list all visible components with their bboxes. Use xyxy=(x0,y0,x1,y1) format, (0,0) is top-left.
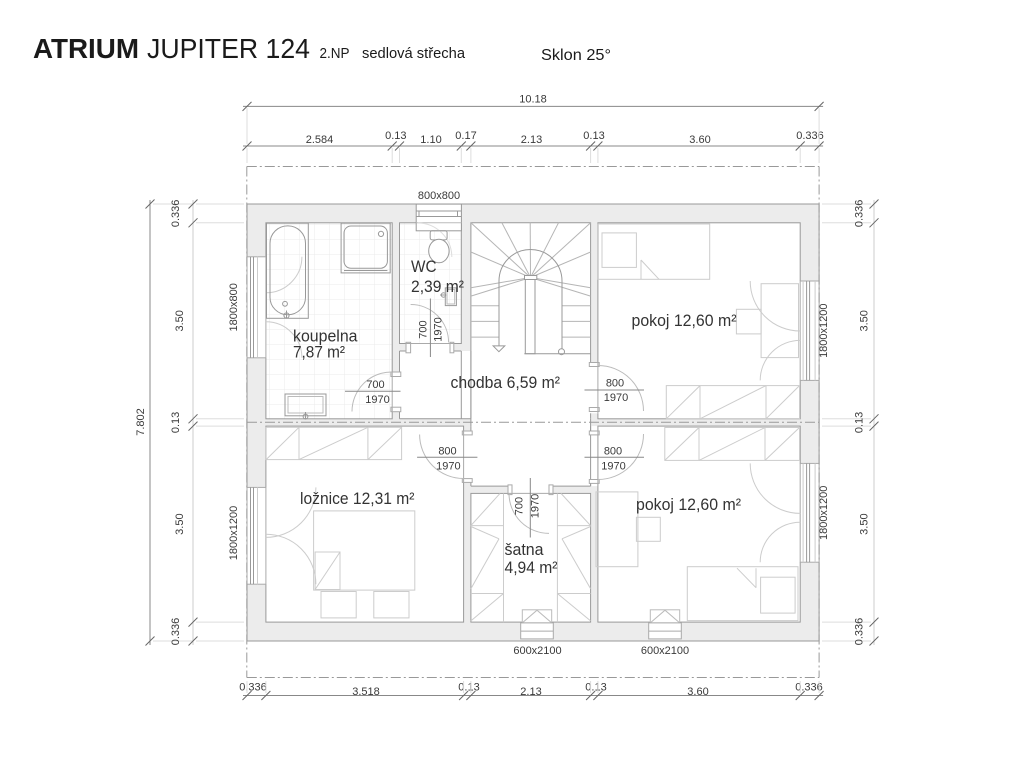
svg-text:800x800: 800x800 xyxy=(418,190,460,202)
svg-text:2,39 m²: 2,39 m² xyxy=(411,277,464,296)
svg-text:1970: 1970 xyxy=(601,461,625,473)
svg-text:0.336: 0.336 xyxy=(170,618,182,646)
svg-text:0.13: 0.13 xyxy=(170,412,182,433)
svg-text:Sklon 25°: Sklon 25° xyxy=(541,47,611,64)
svg-text:ATRIUM: ATRIUM xyxy=(33,33,139,64)
svg-text:3.518: 3.518 xyxy=(352,686,380,698)
svg-text:1800x1200: 1800x1200 xyxy=(818,303,830,357)
svg-text:1800x1200: 1800x1200 xyxy=(228,506,240,560)
svg-text:3.50: 3.50 xyxy=(859,310,871,331)
svg-text:0.13: 0.13 xyxy=(458,682,479,694)
svg-text:0.13: 0.13 xyxy=(585,682,606,694)
svg-text:700: 700 xyxy=(417,320,429,338)
svg-text:JUPITER 124: JUPITER 124 xyxy=(147,33,310,64)
svg-text:0.336: 0.336 xyxy=(854,200,866,228)
svg-text:2.13: 2.13 xyxy=(520,686,541,698)
svg-text:700: 700 xyxy=(514,497,526,515)
svg-text:1.10: 1.10 xyxy=(420,134,441,146)
svg-text:2.13: 2.13 xyxy=(521,134,542,146)
svg-text:0.336: 0.336 xyxy=(170,200,182,228)
svg-text:2.584: 2.584 xyxy=(306,134,334,146)
svg-text:0.336: 0.336 xyxy=(239,682,267,694)
svg-text:1970: 1970 xyxy=(433,317,445,341)
svg-text:0.13: 0.13 xyxy=(583,130,604,142)
svg-text:1800x800: 1800x800 xyxy=(228,283,240,331)
svg-text:800: 800 xyxy=(438,445,456,457)
svg-text:1800x1200: 1800x1200 xyxy=(818,486,830,540)
svg-text:1970: 1970 xyxy=(365,394,389,406)
svg-text:pokoj 12,60 m²: pokoj 12,60 m² xyxy=(636,495,741,514)
svg-text:800: 800 xyxy=(606,378,624,390)
svg-text:0.13: 0.13 xyxy=(385,130,406,142)
svg-text:3.50: 3.50 xyxy=(174,513,186,534)
svg-text:0.13: 0.13 xyxy=(854,412,866,433)
svg-text:4,94 m²: 4,94 m² xyxy=(505,558,558,577)
svg-text:3.60: 3.60 xyxy=(689,134,710,146)
svg-text:2.NP: 2.NP xyxy=(320,45,350,62)
svg-text:pokoj 12,60 m²: pokoj 12,60 m² xyxy=(632,311,737,330)
svg-text:7,87 m²: 7,87 m² xyxy=(293,343,345,362)
svg-text:1970: 1970 xyxy=(436,461,460,473)
svg-text:1970: 1970 xyxy=(530,494,542,518)
svg-text:3.50: 3.50 xyxy=(174,310,186,331)
svg-text:0.336: 0.336 xyxy=(796,130,824,142)
svg-text:600x2100: 600x2100 xyxy=(513,645,561,657)
svg-text:0.17: 0.17 xyxy=(455,130,476,142)
svg-text:600x2100: 600x2100 xyxy=(641,645,689,657)
svg-text:3.50: 3.50 xyxy=(859,513,871,534)
svg-text:7.802: 7.802 xyxy=(135,408,147,436)
svg-text:700: 700 xyxy=(366,379,384,391)
svg-text:WC: WC xyxy=(411,257,437,276)
svg-text:3.60: 3.60 xyxy=(687,686,708,698)
svg-text:0.336: 0.336 xyxy=(854,618,866,646)
svg-text:800: 800 xyxy=(604,445,622,457)
svg-text:10.18: 10.18 xyxy=(519,94,547,106)
svg-text:1970: 1970 xyxy=(604,392,628,404)
svg-text:ložnice 12,31 m²: ložnice 12,31 m² xyxy=(300,489,415,508)
svg-text:chodba 6,59 m²: chodba 6,59 m² xyxy=(451,373,561,392)
svg-text:šatna: šatna xyxy=(505,540,545,559)
svg-text:sedlová střecha: sedlová střecha xyxy=(362,45,466,62)
